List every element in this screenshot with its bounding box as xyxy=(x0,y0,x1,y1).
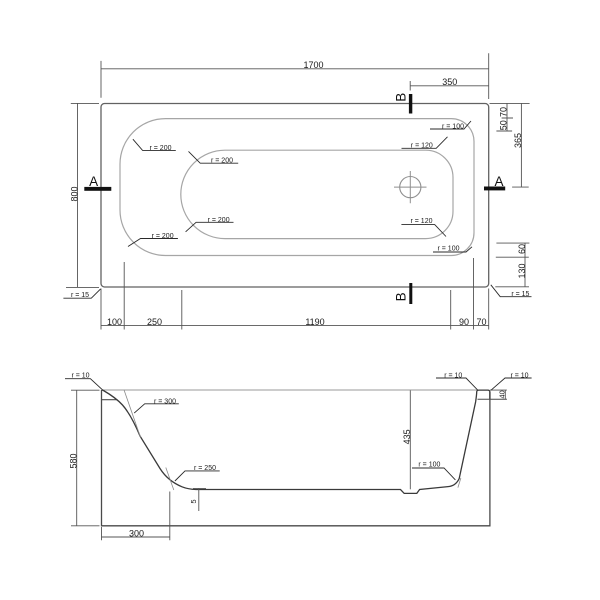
svg-text:800: 800 xyxy=(69,186,79,201)
svg-text:r = 100: r = 100 xyxy=(418,462,440,469)
svg-text:350: 350 xyxy=(442,77,457,87)
svg-text:60: 60 xyxy=(517,244,527,254)
svg-text:r = 100: r = 100 xyxy=(438,246,460,253)
svg-text:r = 120: r = 120 xyxy=(411,142,433,149)
svg-text:5: 5 xyxy=(189,499,198,503)
svg-text:1700: 1700 xyxy=(303,60,323,70)
svg-text:r = 300: r = 300 xyxy=(154,398,176,405)
svg-text:r = 120: r = 120 xyxy=(411,218,433,225)
svg-text:300: 300 xyxy=(129,528,144,538)
svg-text:r = 200: r = 200 xyxy=(150,145,172,152)
svg-text:365: 365 xyxy=(513,133,523,148)
svg-text:r = 10: r = 10 xyxy=(510,372,528,379)
svg-text:70: 70 xyxy=(476,317,486,327)
svg-text:r = 15: r = 15 xyxy=(71,292,89,299)
svg-text:r = 200: r = 200 xyxy=(208,217,230,224)
svg-text:580: 580 xyxy=(68,453,78,468)
svg-text:r = 15: r = 15 xyxy=(511,291,529,298)
svg-text:50: 50 xyxy=(499,120,509,130)
svg-text:435: 435 xyxy=(402,429,412,444)
svg-text:r = 100: r = 100 xyxy=(442,123,464,130)
svg-text:40: 40 xyxy=(497,390,506,398)
svg-text:r = 200: r = 200 xyxy=(152,233,174,240)
svg-text:250: 250 xyxy=(147,317,162,327)
svg-text:A: A xyxy=(89,174,98,189)
svg-text:90: 90 xyxy=(459,317,469,327)
svg-text:B: B xyxy=(393,93,408,102)
svg-text:B: B xyxy=(394,292,409,301)
svg-text:r = 200: r = 200 xyxy=(211,158,233,165)
svg-text:70: 70 xyxy=(499,107,509,117)
svg-text:100: 100 xyxy=(107,317,122,327)
svg-text:1190: 1190 xyxy=(305,317,324,327)
svg-text:r = 250: r = 250 xyxy=(194,465,216,472)
svg-text:r = 10: r = 10 xyxy=(71,373,89,380)
svg-text:130: 130 xyxy=(517,263,527,278)
svg-text:r = 10: r = 10 xyxy=(444,372,462,379)
svg-text:A: A xyxy=(494,174,503,189)
